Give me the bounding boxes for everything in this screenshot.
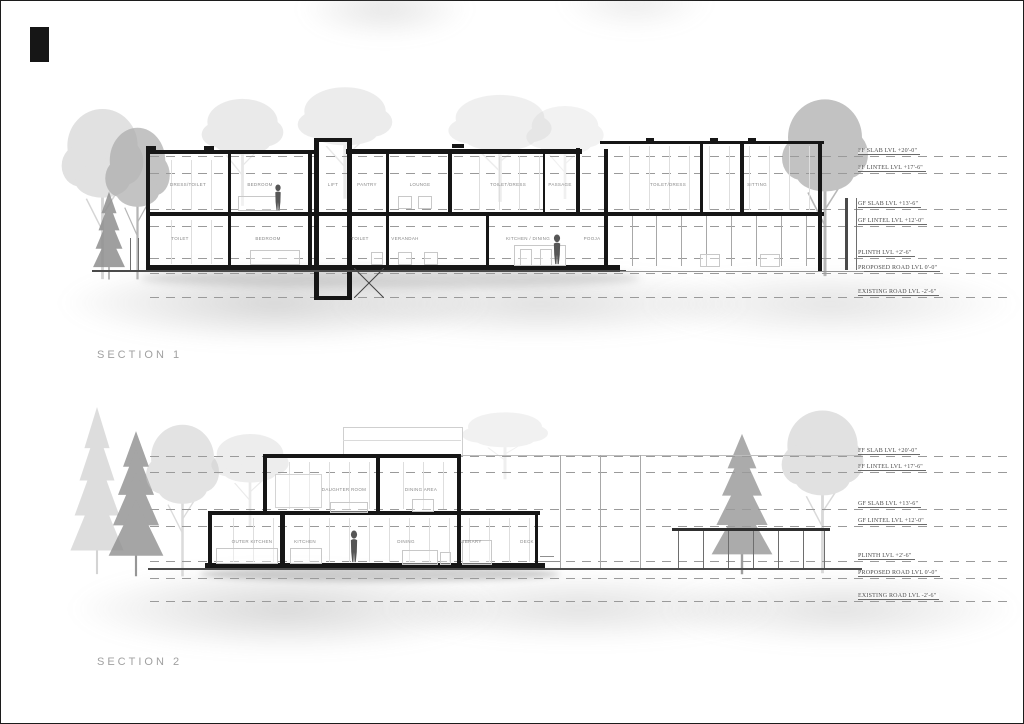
floor-slab (146, 212, 824, 216)
roof-slab (263, 454, 461, 458)
level-label: GF LINTEL LVL +12'-0" (858, 518, 927, 525)
terrain-wash (640, 268, 1020, 340)
glazing (152, 220, 224, 264)
pavilion-column (824, 531, 825, 569)
column (731, 216, 732, 266)
wall-cut (280, 511, 285, 568)
conifer-tree-icon (88, 188, 130, 280)
roof-slab (346, 149, 582, 154)
pavilion-roof (672, 528, 830, 531)
wall-cut (208, 511, 212, 568)
tree-canopy-wash (560, 0, 710, 32)
wall-cut (228, 216, 231, 265)
level-line-proposed-road (150, 578, 1008, 579)
room-label: LOUNGE (410, 182, 431, 187)
wall-cut (308, 150, 312, 270)
room-label: DECK (520, 539, 534, 544)
table (412, 499, 434, 512)
wardrobe (275, 474, 322, 508)
roof-edge-line (461, 455, 861, 456)
chair (440, 552, 451, 565)
bed (250, 250, 300, 265)
level-label: GF LINTEL LVL +12'-0" (858, 218, 927, 225)
frame-line (640, 455, 641, 569)
room-label: DINING (397, 539, 415, 544)
wall-cut (543, 149, 545, 212)
wall-cut (263, 454, 267, 515)
wall-cut (700, 141, 703, 212)
stair-brace (354, 268, 384, 298)
kitchen-counter (216, 548, 278, 564)
level-label: FF SLAB LVL +20'-0" (858, 448, 920, 455)
wall-cut (386, 149, 389, 212)
level-label: FF LINTEL LVL +17'-6" (858, 165, 926, 172)
room-label: POOJA (584, 236, 601, 241)
lift-shaft-wall (347, 138, 352, 300)
chair (371, 252, 383, 265)
wall-cut (146, 150, 150, 270)
pavilion-column (728, 531, 729, 569)
roof-slab (600, 141, 824, 144)
level-label: FF LINTEL LVL +17'-6" (858, 464, 926, 471)
wall-cut (228, 150, 231, 212)
clerestory-line (343, 440, 461, 441)
level-line-plinth (150, 561, 1008, 562)
section-1-title: SECTION 1 (97, 349, 182, 361)
room-label: TOILET/DRESS (650, 182, 686, 187)
compound-wall (138, 238, 139, 270)
kitchen-counter (290, 548, 322, 564)
level-label: GF SLAB LVL +13'-6" (858, 501, 921, 508)
wall-cut (740, 141, 744, 212)
column (681, 216, 682, 266)
deck-step (540, 561, 560, 562)
wall-cut (486, 216, 489, 265)
terrain-wash (660, 572, 1020, 647)
chair (520, 249, 532, 266)
wall-cut (457, 454, 461, 566)
corner-logo-mark (30, 27, 49, 62)
level-line-existing-road (150, 601, 1008, 602)
planter (760, 254, 780, 267)
level-line-existing-road (150, 297, 1008, 298)
glazing (610, 146, 815, 210)
ground-line (620, 271, 864, 272)
level-label: PLINTH LVL +2'-6" (858, 553, 915, 560)
room-label: BEDROOM (255, 236, 280, 241)
room-label: VERANDAH (391, 236, 418, 241)
wall-cut (604, 149, 608, 270)
wall-cut (818, 141, 822, 272)
wall-cut (448, 149, 452, 212)
level-line-gf-lintel (150, 226, 1008, 227)
chair (424, 252, 438, 265)
column (756, 216, 757, 266)
room-label: KITCHEN (294, 539, 316, 544)
person-figure (347, 530, 361, 563)
room-label: TOILET (351, 236, 368, 241)
level-label: PROPOSED ROAD LVL 0'-0" (858, 265, 940, 272)
conifer-tree-icon (702, 428, 782, 575)
tree-canopy-wash (300, 0, 470, 40)
roof-beam-end (710, 138, 718, 141)
frame-line (560, 455, 561, 569)
room-label: LIFT (328, 182, 338, 187)
room-label: KITCHEN / DINING (506, 236, 550, 241)
lift-shaft-wall (314, 138, 319, 300)
column (632, 216, 633, 266)
chair (398, 252, 412, 265)
pavilion-column (703, 531, 704, 569)
pavilion-column (778, 531, 779, 569)
room-label: OUTER KITCHEN (232, 539, 273, 544)
deciduous-tree-icon (775, 400, 870, 575)
room-label: LIBRARY (460, 539, 481, 544)
room-label: DRESS/TOILET (170, 182, 206, 187)
level-label: PLINTH LVL +2'-6" (858, 250, 915, 257)
roof-beam-end (646, 138, 654, 141)
lift-shaft-bottom (314, 296, 352, 300)
roof-beam-end (748, 138, 756, 141)
parapet (204, 146, 214, 150)
parapet (452, 144, 464, 148)
level-label: PROPOSED ROAD LVL 0'-0" (858, 570, 940, 577)
dining-table (402, 550, 438, 565)
wall-cut (376, 454, 380, 515)
level-label: EXISTING ROAD LVL -2'-6" (858, 289, 939, 296)
column (806, 216, 807, 266)
room-label: TOILET (171, 236, 188, 241)
deciduous-tree-icon (455, 408, 555, 480)
deck-step (540, 556, 554, 557)
lift-shaft-top (314, 138, 352, 142)
room-label: PANTRY (357, 182, 377, 187)
floor-slab (208, 511, 540, 515)
column (781, 216, 782, 266)
room-label: DINING AREA (405, 487, 437, 492)
chair (418, 196, 432, 209)
ground-line (148, 568, 862, 570)
pavilion-column (753, 531, 754, 569)
wall-cut (386, 216, 389, 265)
level-line-gf-slab (150, 509, 1008, 510)
level-label: EXISTING ROAD LVL -2'-6" (858, 593, 939, 600)
level-label: GF SLAB LVL +13'-6" (858, 201, 921, 208)
wall-cut (576, 148, 580, 212)
gate-post (845, 198, 848, 270)
room-label: DAUGHTER ROOM (322, 487, 366, 492)
chair (398, 196, 412, 209)
frame-line (600, 455, 601, 569)
pavilion-column (678, 531, 679, 569)
compound-wall (130, 238, 131, 270)
bed (330, 502, 368, 513)
section-2-title: SECTION 2 (97, 656, 182, 668)
room-label: PASSAGE (548, 182, 571, 187)
planter (700, 254, 720, 267)
pavilion-column (803, 531, 804, 569)
wall-cut (535, 511, 538, 566)
level-label: FF SLAB LVL +20'-0" (858, 148, 920, 155)
room-label: TOILET/DRESS (490, 182, 526, 187)
room-label: BEDROOM (247, 182, 272, 187)
room-label: SITTING (747, 182, 767, 187)
drawing-sheet: FF SLAB LVL +20'-0" FF LINTEL LVL +17'-6… (0, 0, 1024, 724)
gate-post (856, 198, 857, 270)
person-figure (272, 184, 284, 211)
column (656, 216, 657, 266)
person-figure (550, 234, 564, 265)
level-line-gf-lintel (150, 526, 1008, 527)
level-line-proposed-road (150, 273, 1008, 274)
clerestory-outline (343, 427, 463, 456)
